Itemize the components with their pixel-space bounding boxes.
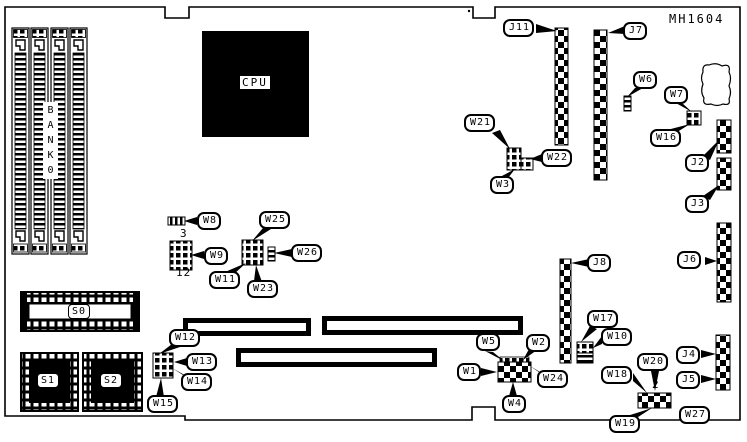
callout-w17: W17 [587,310,618,328]
w20-pin-count: 2 [652,379,660,390]
callout-w21: W21 [464,114,495,132]
callout-w19: W19 [609,415,640,433]
w17-leader [581,326,597,342]
callout-w25: W25 [259,211,290,229]
w9-pin-count: 12 [176,267,191,278]
bank0-label: B A N K 0 [43,102,58,179]
board-speck [468,10,470,12]
w1-leader [481,368,497,376]
w12-w15-jumper-block [153,353,173,378]
callout-w13: W13 [186,353,217,371]
w21-leader [492,130,510,149]
callout-w18: W18 [601,366,632,384]
callout-w16: W16 [650,129,681,147]
part-number: MH1604 [669,12,724,26]
expansion-slot-3 [236,348,437,367]
callout-j3: J3 [685,195,709,213]
callout-w12: W12 [169,329,200,347]
callout-w1: W1 [457,363,481,381]
j4-j5-header [716,335,730,390]
simm-socket-4 [70,28,87,254]
expansion-slot-1 [183,318,311,336]
j3-header [717,158,731,190]
j7-header [594,30,607,180]
w6-jumper [624,96,631,111]
j6-leader [705,257,717,265]
callout-w24: W24 [537,370,568,388]
w26-jumper [268,247,275,261]
j11-header [555,28,568,145]
j4-leader [701,350,716,358]
callout-w14: W14 [181,373,212,391]
callout-w4: W4 [502,395,526,413]
w26-leader [274,249,292,257]
callout-j2: J2 [685,154,709,172]
w8-jumper [168,217,185,225]
callout-j5: J5 [676,371,700,389]
callout-w8: W8 [197,212,221,230]
w18-w20-jumper-block [638,393,671,408]
blob-outline [702,64,731,106]
callout-w6: W6 [633,71,657,89]
callout-w23: W23 [247,280,278,298]
j6-header [717,223,731,302]
callout-w2: W2 [526,334,550,352]
callout-w15: W15 [147,395,178,413]
s1-label: S1 [37,373,59,388]
w18-leader [633,373,647,393]
callout-w26: W26 [291,244,322,262]
w25-leader [252,228,271,241]
w8-leader [184,217,197,225]
simm-socket-1 [12,28,29,254]
j11-leader [536,24,557,33]
w4-leader [509,382,517,396]
callout-w10: W10 [601,328,632,346]
motherboard-diagram: MH1604 CPU B A N K 0 S0 S1 S2 3 12 2 J11… [0,0,747,442]
w1-w5-jumper-block [498,357,531,382]
w25-jumper-grid [242,240,263,265]
w7-w16-jumper-block [687,111,701,125]
j8-header [560,259,571,363]
callout-w27: W27 [679,406,710,424]
j2-header [717,120,731,153]
callout-w3: W3 [490,176,514,194]
w9-leader [191,251,204,259]
cpu-label: CPU [240,76,270,89]
w8-pin-count: 3 [180,228,188,239]
j5-leader [701,375,716,383]
w21-w22-w3-jumper-block [507,148,533,170]
callout-w20: W20 [637,353,668,371]
callout-w5: W5 [476,333,500,351]
s2-label: S2 [100,373,122,388]
callout-j11: J11 [503,19,534,37]
w17-w10-jumper-block [577,342,593,363]
callout-j6: J6 [677,251,701,269]
callout-w11: W11 [209,271,240,289]
callout-j8: J8 [587,254,611,272]
callout-w9: W9 [204,247,228,265]
callout-w22: W22 [541,149,572,167]
callout-j4: J4 [676,346,700,364]
callout-w7: W7 [664,86,688,104]
s0-label: S0 [68,304,90,319]
callout-j7: J7 [623,22,647,40]
